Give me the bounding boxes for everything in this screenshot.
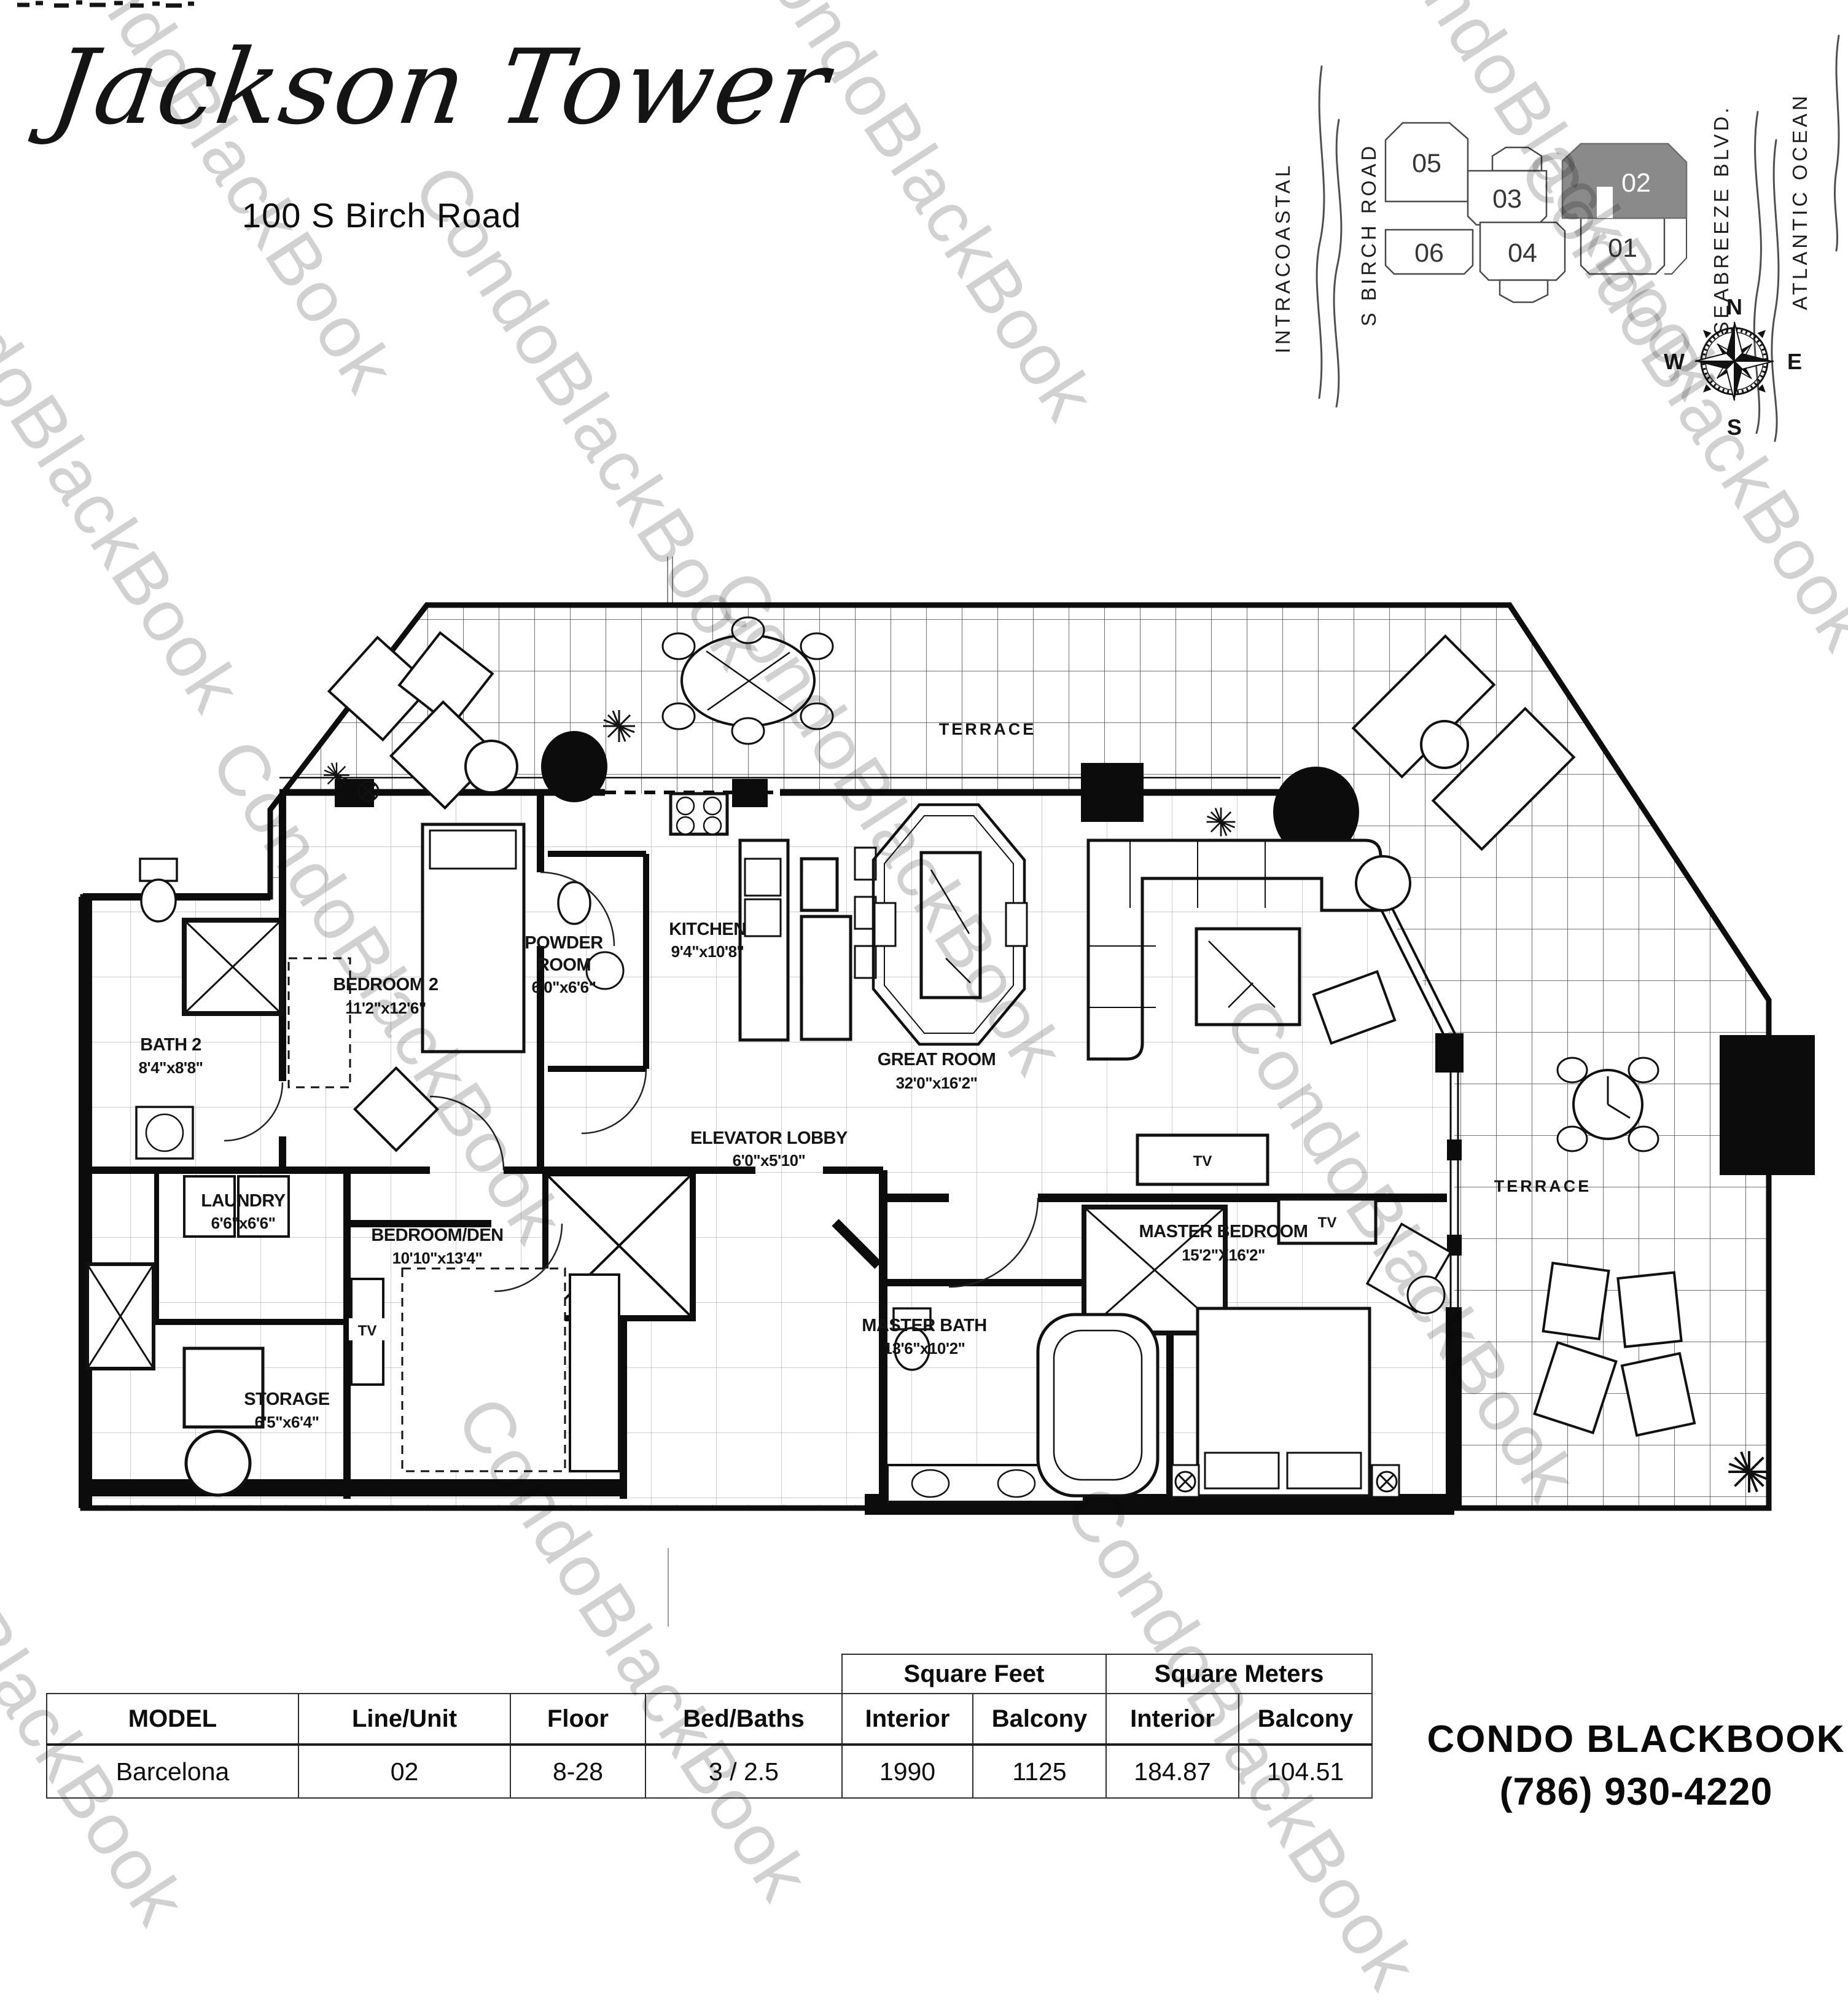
master-bedroom-dims: 15'2"X16'2" (1182, 1246, 1265, 1264)
great-room-label: GREAT ROOM (878, 1050, 996, 1069)
powder-room-label-1: POWDER (524, 933, 603, 953)
street-intracoastal: INTRACOASTAL (1271, 163, 1294, 354)
compass-s-label: S (1727, 415, 1742, 440)
unit-04-bump (1500, 280, 1548, 302)
group-header-square-meters: Square Meters (1106, 1654, 1372, 1694)
unit-03-bump (1492, 147, 1542, 171)
cell-sm-balcony: 104.51 (1239, 1745, 1372, 1798)
col-header-model: MODEL (47, 1694, 298, 1745)
master-bath-dims: 13'6"x10'2" (884, 1339, 965, 1358)
col-header-sf-balcony: Balcony (973, 1694, 1106, 1745)
cell-floor: 8-28 (510, 1745, 645, 1798)
laundry-label: LAUNDRY (201, 1191, 285, 1211)
brand-phone: (786) 930-4220 (1421, 1770, 1848, 1814)
bath2-dims: 8'4"x8'8" (139, 1058, 203, 1077)
site-map: INTRACOASTAL S BIRCH ROAD SEABREEZE BLVD… (1271, 36, 1839, 441)
cell-bed-baths: 3 / 2.5 (645, 1745, 842, 1798)
storage-label: STORAGE (244, 1389, 330, 1409)
building-address: 100 S Birch Road (242, 195, 521, 235)
compass-w-label: W (1664, 349, 1685, 374)
col-header-bed-baths: Bed/Baths (645, 1694, 842, 1745)
kitchen-label: KITCHEN (669, 920, 746, 939)
floor-plan: TERRACE TERRACE BEDROOM 2 11'2"x12'6" BA… (79, 605, 1815, 1515)
cell-sf-balcony: 1125 (973, 1745, 1106, 1798)
cell-sf-interior: 1990 (842, 1745, 973, 1798)
storage-dims: 6'5"x6'4" (255, 1413, 319, 1431)
brand-name: CONDO BLACKBOOK (1421, 1718, 1848, 1761)
tv-label-den: TV (358, 1323, 377, 1339)
unit-label-05: 05 (1412, 149, 1441, 178)
master-bedroom-label: MASTER BEDROOM (1139, 1222, 1308, 1241)
table-row: Barcelona 02 8-28 3 / 2.5 1990 1125 184.… (47, 1745, 1372, 1798)
unit-label-06: 06 (1414, 238, 1444, 268)
elevator-lobby-label: ELEVATOR LOBBY (690, 1128, 848, 1148)
col-header-sm-balcony: Balcony (1239, 1694, 1372, 1745)
laundry-dims: 6'6"x6'6" (211, 1214, 276, 1232)
unit-label-04: 04 (1508, 238, 1537, 268)
unit-label-03: 03 (1492, 184, 1522, 214)
elevator-lobby-dims: 6'0"x5'10" (733, 1151, 806, 1170)
col-header-sm-interior: Interior (1106, 1694, 1239, 1745)
cell-line-unit: 02 (298, 1745, 510, 1798)
table-blank-corner (47, 1654, 842, 1694)
bath2-label: BATH 2 (140, 1035, 201, 1055)
contact-block: CONDO BLACKBOOK (786) 930-4220 (1421, 1718, 1848, 1814)
great-room-dims: 32'0"x16'2" (896, 1074, 978, 1092)
cell-model: Barcelona (47, 1745, 298, 1798)
unit-02-notch (1597, 187, 1613, 218)
floorplan-flyer-page: { "watermark": "CondoBlackBook", "header… (0, 0, 1848, 1846)
street-atlantic-ocean: ATLANTIC OCEAN (1788, 93, 1811, 310)
unit-label-01: 01 (1608, 233, 1637, 263)
tv-label-great-room: TV (1193, 1153, 1212, 1170)
unit-label-02: 02 (1621, 168, 1651, 198)
col-header-sf-interior: Interior (842, 1694, 973, 1745)
powder-room-label-2: ROOM (537, 955, 591, 975)
tv-label-master: TV (1318, 1214, 1337, 1231)
kitchen-dims: 9'4"x10'8" (671, 942, 744, 961)
col-header-line-unit: Line/Unit (298, 1694, 510, 1745)
compass-rose-icon: N E S W (1664, 294, 1802, 440)
bedroom2-label: BEDROOM 2 (333, 975, 438, 995)
spec-table: Square Feet Square Meters MODEL Line/Uni… (46, 1654, 1373, 1799)
unit-02-footprint-line (1664, 218, 1686, 274)
col-header-floor: Floor (510, 1694, 645, 1745)
structural-column (1720, 1035, 1815, 1175)
bedroom2-dims: 11'2"x12'6" (345, 999, 426, 1017)
compass-n-label: N (1726, 294, 1742, 319)
master-bath-label: MASTER BATH (862, 1316, 986, 1335)
building-title: Jackson Tower (44, 27, 836, 147)
compass-e-label: E (1787, 349, 1802, 374)
cell-sm-interior: 184.87 (1106, 1745, 1239, 1798)
bedroom-den-dims: 10'10"x13'4" (392, 1249, 483, 1267)
terrace-top-label: TERRACE (939, 720, 1037, 738)
powder-room-dims: 6'0"x6'6" (532, 978, 596, 996)
street-s-birch-road: S BIRCH ROAD (1357, 143, 1380, 326)
bedroom-den-label: BEDROOM/DEN (371, 1225, 503, 1245)
terrace-right-label: TERRACE (1494, 1177, 1592, 1195)
group-header-square-feet: Square Feet (842, 1654, 1106, 1694)
artwork-canvas: INTRACOASTAL S BIRCH ROAD SEABREEZE BLVD… (0, 0, 1848, 1846)
